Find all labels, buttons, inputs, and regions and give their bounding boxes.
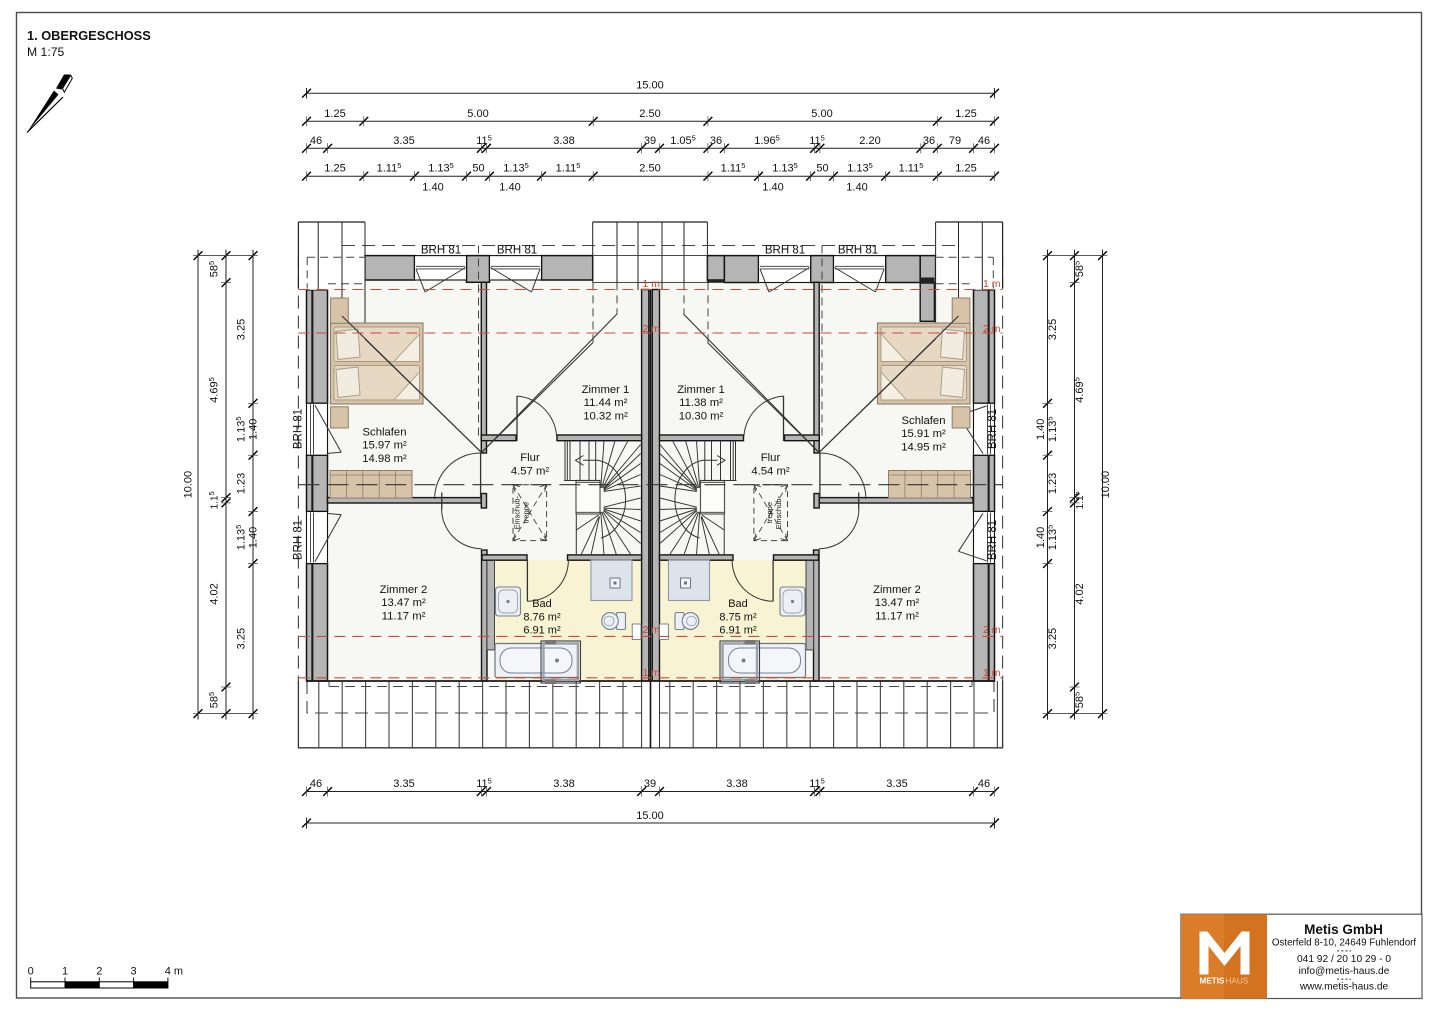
svg-text:METIS: METIS xyxy=(1200,977,1226,986)
svg-text:1.40: 1.40 xyxy=(846,182,867,194)
svg-text:1.25: 1.25 xyxy=(955,163,976,175)
svg-text:46: 46 xyxy=(978,778,990,790)
svg-text:13.47 m²: 13.47 m² xyxy=(875,597,920,609)
svg-text:Schlafen: Schlafen xyxy=(902,415,946,427)
svg-text:www.metis-haus.de: www.metis-haus.de xyxy=(1299,982,1389,993)
svg-text:10.30 m²: 10.30 m² xyxy=(679,411,724,423)
svg-text:BRH 81: BRH 81 xyxy=(987,409,999,449)
svg-text:79: 79 xyxy=(949,135,961,147)
svg-text:1 m: 1 m xyxy=(983,278,1001,290)
svg-text:2.20: 2.20 xyxy=(859,135,880,147)
svg-text:4.57 m²: 4.57 m² xyxy=(511,465,550,477)
svg-text:Einschub-: Einschub- xyxy=(513,495,522,529)
svg-text:1.40: 1.40 xyxy=(762,182,783,194)
svg-text:14.95 m²: 14.95 m² xyxy=(901,441,946,453)
svg-text:3.25: 3.25 xyxy=(1047,319,1059,340)
svg-text:8.75 m²: 8.75 m² xyxy=(719,611,757,623)
svg-text:BRH 81: BRH 81 xyxy=(838,245,878,257)
svg-text:11.44 m²: 11.44 m² xyxy=(584,397,628,409)
svg-text:50: 50 xyxy=(472,163,484,175)
svg-text:3.25: 3.25 xyxy=(236,319,248,340)
svg-text:4.02: 4.02 xyxy=(209,583,221,604)
svg-text:5.00: 5.00 xyxy=(467,108,488,120)
svg-text:info@metis-haus.de: info@metis-haus.de xyxy=(1299,966,1390,977)
svg-text:4.02: 4.02 xyxy=(1074,583,1086,604)
svg-text:BRH 81: BRH 81 xyxy=(765,245,805,257)
svg-text:15.91 m²: 15.91 m² xyxy=(901,428,946,440)
svg-text:Metis GmbH: Metis GmbH xyxy=(1304,922,1383,937)
svg-text:46: 46 xyxy=(310,135,322,147)
svg-text:36: 36 xyxy=(710,135,722,147)
svg-text:BRH 81: BRH 81 xyxy=(293,520,305,560)
svg-text:2 m: 2 m xyxy=(983,624,1001,636)
svg-text:39: 39 xyxy=(644,778,656,790)
svg-text:2: 2 xyxy=(96,966,102,978)
svg-text:14.98 m²: 14.98 m² xyxy=(362,453,407,465)
svg-text:46: 46 xyxy=(310,778,322,790)
svg-text:Zimmer 1: Zimmer 1 xyxy=(582,384,630,396)
svg-text:Flur: Flur xyxy=(761,452,781,464)
svg-text:Bad: Bad xyxy=(728,598,748,610)
svg-text:11.17 m²: 11.17 m² xyxy=(875,611,919,623)
svg-text:1.40: 1.40 xyxy=(248,527,260,548)
svg-text:3.38: 3.38 xyxy=(553,778,574,790)
svg-text:1 m: 1 m xyxy=(643,667,661,679)
svg-text:1.25: 1.25 xyxy=(324,163,345,175)
svg-text:3: 3 xyxy=(131,966,137,978)
svg-text:10.00: 10.00 xyxy=(183,471,195,499)
svg-text:1.40: 1.40 xyxy=(248,419,260,440)
svg-text:11.38 m²: 11.38 m² xyxy=(679,397,723,409)
svg-text:1 m: 1 m xyxy=(643,278,661,290)
svg-text:Zimmer 2: Zimmer 2 xyxy=(380,584,428,596)
svg-text:Zimmer 1: Zimmer 1 xyxy=(677,384,725,396)
svg-text:15.00: 15.00 xyxy=(636,810,664,822)
svg-text:2 m: 2 m xyxy=(643,624,661,636)
svg-text:3.38: 3.38 xyxy=(726,778,747,790)
svg-text:36: 36 xyxy=(923,135,935,147)
svg-text:15.00: 15.00 xyxy=(636,80,664,92)
svg-text:39: 39 xyxy=(644,135,656,147)
svg-text:6.91 m²: 6.91 m² xyxy=(523,625,561,637)
svg-text:Bad: Bad xyxy=(532,598,552,610)
svg-text:treppe: treppe xyxy=(522,502,531,523)
svg-text:Schlafen: Schlafen xyxy=(363,426,407,438)
svg-text:1.23: 1.23 xyxy=(1047,473,1059,494)
svg-text:1: 1 xyxy=(62,966,68,978)
svg-text:BRH 81: BRH 81 xyxy=(293,409,305,449)
svg-text:2.50: 2.50 xyxy=(639,163,660,175)
svg-text:HAUS: HAUS xyxy=(1226,977,1249,986)
svg-text:2 m: 2 m xyxy=(983,323,1001,335)
svg-text:Flur: Flur xyxy=(520,452,540,464)
svg-text:0: 0 xyxy=(28,966,34,978)
svg-text:treppe: treppe xyxy=(765,502,774,523)
svg-text:3.25: 3.25 xyxy=(1047,628,1059,649)
svg-text:15.97 m²: 15.97 m² xyxy=(362,440,407,452)
svg-text:1. OBERGESCHOSS: 1. OBERGESCHOSS xyxy=(27,28,151,43)
svg-text:1.40: 1.40 xyxy=(499,182,520,194)
svg-text:11.17 m²: 11.17 m² xyxy=(382,611,426,623)
svg-text:Osterfeld 8-10, 24649 Fuhlendo: Osterfeld 8-10, 24649 Fuhlendorf xyxy=(1272,938,1417,949)
svg-text:1 m: 1 m xyxy=(983,667,1001,679)
svg-text:1.40: 1.40 xyxy=(1035,527,1047,548)
svg-text:5.00: 5.00 xyxy=(811,108,832,120)
svg-text:BRH 81: BRH 81 xyxy=(421,245,461,257)
svg-text:BRH 81: BRH 81 xyxy=(987,520,999,560)
svg-text:3.35: 3.35 xyxy=(393,135,414,147)
svg-text:M 1:75: M 1:75 xyxy=(27,45,64,59)
svg-text:8.76 m²: 8.76 m² xyxy=(523,611,561,623)
svg-text:50: 50 xyxy=(816,163,828,175)
svg-text:1.25: 1.25 xyxy=(955,108,976,120)
svg-text:6.91 m²: 6.91 m² xyxy=(719,625,757,637)
svg-text:BRH 81: BRH 81 xyxy=(497,245,537,257)
svg-text:3.38: 3.38 xyxy=(553,135,574,147)
svg-text:1.25: 1.25 xyxy=(324,108,345,120)
svg-text:1.40: 1.40 xyxy=(1035,419,1047,440)
svg-text:Zimmer 2: Zimmer 2 xyxy=(873,584,921,596)
svg-text:10.00: 10.00 xyxy=(1100,471,1112,499)
svg-text:4.54 m²: 4.54 m² xyxy=(751,465,790,477)
svg-text:1.23: 1.23 xyxy=(236,473,248,494)
svg-text:2.50: 2.50 xyxy=(639,108,660,120)
svg-text:2 m: 2 m xyxy=(643,323,661,335)
svg-text:13.47 m²: 13.47 m² xyxy=(381,597,426,609)
svg-text:3.35: 3.35 xyxy=(886,778,907,790)
svg-text:10.32 m²: 10.32 m² xyxy=(583,411,628,423)
svg-text:46: 46 xyxy=(978,135,990,147)
svg-text:3.25: 3.25 xyxy=(236,628,248,649)
svg-text:041 92 / 20 10 29 - 0: 041 92 / 20 10 29 - 0 xyxy=(1297,954,1391,965)
svg-text:Einschub-: Einschub- xyxy=(774,495,783,529)
svg-text:3.35: 3.35 xyxy=(393,778,414,790)
svg-text:4 m: 4 m xyxy=(165,966,183,978)
svg-text:1.40: 1.40 xyxy=(422,182,443,194)
